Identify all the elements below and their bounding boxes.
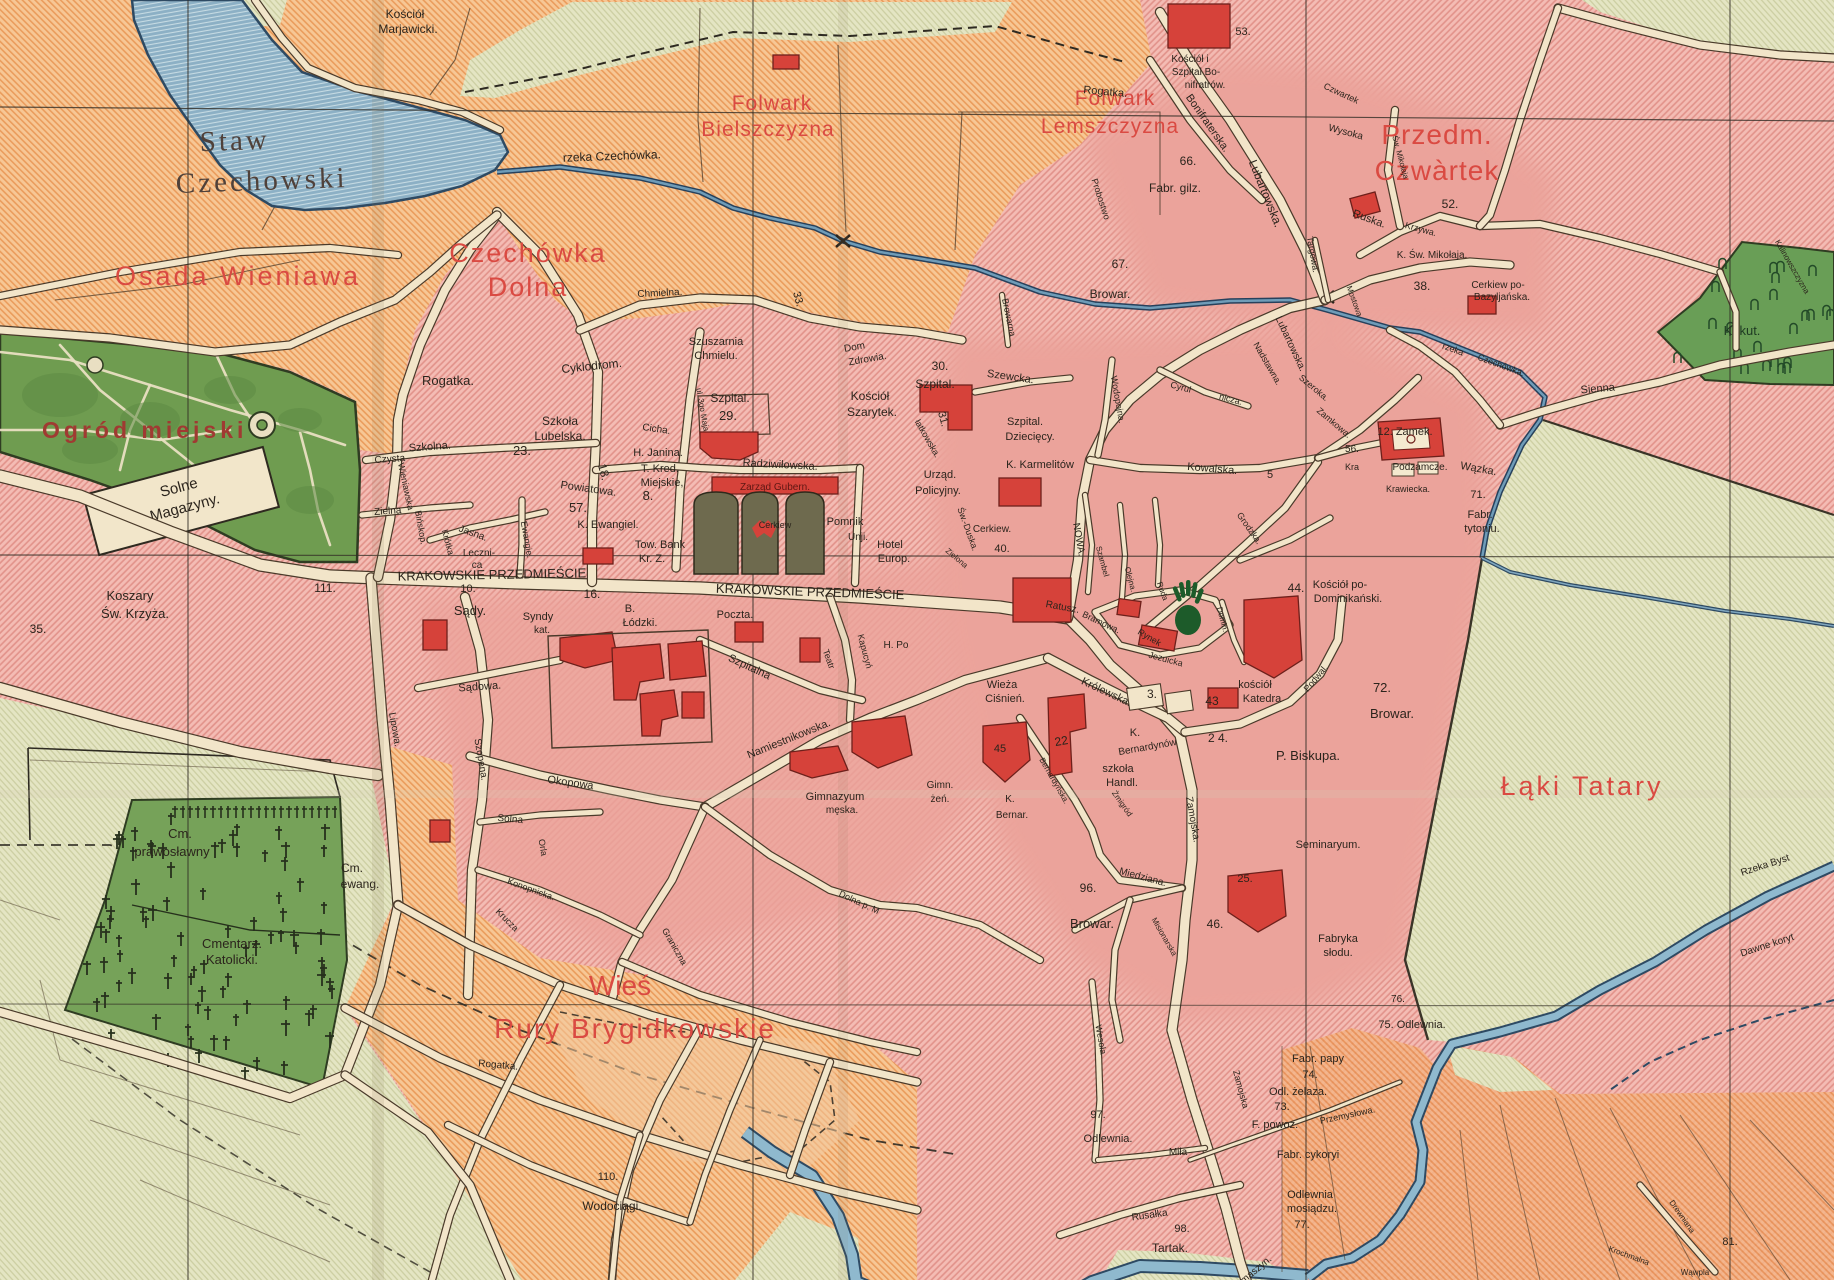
svg-text:Szpital.: Szpital. <box>1007 416 1043 428</box>
svg-text:12. Zamek.: 12. Zamek. <box>1377 426 1432 438</box>
svg-text:mosiądzu.: mosiądzu. <box>1287 1203 1337 1215</box>
svg-text:Szkoła: Szkoła <box>542 414 578 428</box>
svg-text:96.: 96. <box>1080 881 1097 895</box>
svg-text:K. Karmelitów: K. Karmelitów <box>1006 459 1074 471</box>
svg-text:77.: 77. <box>1294 1219 1309 1231</box>
svg-text:Chmielu.: Chmielu. <box>694 350 737 362</box>
svg-text:Rogatka.: Rogatka. <box>422 373 474 388</box>
svg-text:żeń.: żeń. <box>931 794 950 805</box>
svg-text:Cmentarz.: Cmentarz. <box>202 936 262 951</box>
svg-text:Kr. Z.: Kr. Z. <box>639 553 665 565</box>
svg-text:Dolna: Dolna <box>488 272 569 302</box>
svg-text:72.: 72. <box>1373 680 1391 695</box>
svg-text:Wodociągi.: Wodociągi. <box>582 1199 641 1213</box>
svg-text:Łódzki.: Łódzki. <box>623 617 658 629</box>
svg-text:38.: 38. <box>1414 279 1431 293</box>
svg-text:74.: 74. <box>1302 1069 1317 1081</box>
svg-text:kat.: kat. <box>534 625 550 636</box>
svg-text:44.: 44. <box>1288 581 1305 595</box>
svg-text:Szuszarnia: Szuszarnia <box>689 336 744 348</box>
svg-text:Osada Wieniawa: Osada Wieniawa <box>115 261 361 291</box>
svg-text:Tartak.: Tartak. <box>1152 1241 1188 1255</box>
svg-text:25.: 25. <box>1237 873 1252 885</box>
svg-text:Kra: Kra <box>1345 462 1359 472</box>
svg-text:Lemszczyzna: Lemszczyzna <box>1041 115 1179 138</box>
svg-text:Szpital.: Szpital. <box>915 377 954 391</box>
svg-text:29.: 29. <box>719 408 737 423</box>
svg-text:52.: 52. <box>1442 197 1459 211</box>
svg-text:110.: 110. <box>598 1171 619 1183</box>
svg-text:Cerkiew po-: Cerkiew po- <box>1471 280 1524 291</box>
svg-text:Szpital.: Szpital. <box>710 391 749 405</box>
svg-text:szkoła: szkoła <box>1102 763 1134 775</box>
svg-text:Miejskie,: Miejskie, <box>641 477 684 489</box>
svg-text:Św. Krzyża.: Św. Krzyża. <box>101 606 169 621</box>
svg-text:Bazyljańska.: Bazyljańska. <box>1474 292 1530 303</box>
svg-text:słodu.: słodu. <box>1323 947 1352 959</box>
svg-text:Staw: Staw <box>199 124 270 158</box>
svg-text:Fabr.: Fabr. <box>1467 509 1492 521</box>
svg-text:Tow. Bank: Tow. Bank <box>635 539 686 551</box>
svg-text:Solna: Solna <box>497 813 524 826</box>
svg-text:Dziecięcy.: Dziecięcy. <box>1005 431 1054 443</box>
svg-text:57.: 57. <box>569 500 587 515</box>
svg-text:Podzamcze.: Podzamcze. <box>1392 462 1447 473</box>
svg-text:Fabr. cykoryi: Fabr. cykoryi <box>1277 1149 1339 1161</box>
svg-text:30.: 30. <box>932 359 949 373</box>
svg-text:P. Biskupa.: P. Biskupa. <box>1276 748 1340 763</box>
svg-text:40.: 40. <box>994 543 1009 555</box>
svg-text:73.: 73. <box>1274 1101 1289 1113</box>
svg-text:16.: 16. <box>584 587 601 601</box>
svg-text:Bielszczyzna: Bielszczyzna <box>701 118 834 141</box>
svg-text:Ogród miejski: Ogród miejski <box>42 417 247 443</box>
svg-text:Gimnazyum: Gimnazyum <box>806 791 865 803</box>
svg-text:Browar.: Browar. <box>1370 706 1414 721</box>
svg-text:98.: 98. <box>1174 1223 1189 1235</box>
svg-text:2 4.: 2 4. <box>1208 731 1228 745</box>
svg-text:Katedra: Katedra <box>1243 693 1282 705</box>
svg-text:111.: 111. <box>314 581 336 595</box>
svg-text:Syndy: Syndy <box>523 611 554 623</box>
svg-text:męska.: męska. <box>826 805 858 816</box>
svg-text:23.: 23. <box>513 443 531 458</box>
svg-text:Marjawicki.: Marjawicki. <box>378 22 437 36</box>
svg-text:Szpital Bo-: Szpital Bo- <box>1172 67 1220 78</box>
svg-text:22: 22 <box>1054 733 1070 749</box>
svg-text:Leczni-: Leczni- <box>463 548 495 559</box>
svg-text:H. Po: H. Po <box>883 640 908 651</box>
svg-text:prawosławny: prawosławny <box>134 844 210 859</box>
svg-text:Fabr. papy: Fabr. papy <box>1292 1053 1344 1065</box>
svg-text:97.: 97. <box>1090 1109 1105 1121</box>
svg-text:Wieś: Wieś <box>589 970 651 1001</box>
svg-text:Handl.: Handl. <box>1106 777 1138 789</box>
svg-text:Browar.: Browar. <box>1070 916 1114 931</box>
svg-text:Hotel: Hotel <box>877 539 903 551</box>
svg-text:K. Św. Mikołaja.: K. Św. Mikołaja. <box>1397 248 1468 261</box>
svg-text:Dominikański.: Dominikański. <box>1314 593 1382 605</box>
svg-text:67.: 67. <box>1112 257 1129 271</box>
svg-text:Wieża: Wieża <box>987 679 1018 691</box>
svg-text:Rury Brygidkowskie: Rury Brygidkowskie <box>494 1013 776 1044</box>
svg-text:Odlewnia: Odlewnia <box>1287 1189 1334 1201</box>
svg-text:B.: B. <box>625 603 635 615</box>
svg-text:Czwàrtek: Czwàrtek <box>1375 155 1500 186</box>
svg-text:Unji.: Unji. <box>848 532 868 543</box>
svg-text:tytoniu.: tytoniu. <box>1464 523 1499 535</box>
svg-text:Łąki Tatary: Łąki Tatary <box>1500 771 1663 801</box>
svg-text:5: 5 <box>1267 469 1273 481</box>
svg-text:53.: 53. <box>1235 26 1250 38</box>
svg-text:Odl. żelaza.: Odl. żelaza. <box>1269 1086 1327 1098</box>
svg-text:8.: 8. <box>643 488 654 503</box>
svg-text:71.: 71. <box>1470 489 1485 501</box>
svg-text:75. Odlewnia.: 75. Odlewnia. <box>1378 1019 1445 1031</box>
svg-text:nifratrów.: nifratrów. <box>1185 80 1226 91</box>
svg-text:Cerkiew.: Cerkiew. <box>973 524 1011 535</box>
svg-text:Zielna: Zielna <box>374 505 402 518</box>
svg-text:35.: 35. <box>30 622 47 636</box>
svg-text:Bernar.: Bernar. <box>996 810 1028 821</box>
svg-text:Odlewnia.: Odlewnia. <box>1084 1133 1133 1145</box>
svg-text:66.: 66. <box>1180 154 1197 168</box>
svg-text:10.: 10. <box>460 583 475 595</box>
svg-text:Miła: Miła <box>1169 1147 1188 1158</box>
svg-text:Seminaryum.: Seminaryum. <box>1296 839 1361 851</box>
svg-text:81.: 81. <box>1722 1236 1737 1248</box>
svg-text:K. Ewangiel.: K. Ewangiel. <box>577 519 638 531</box>
svg-text:46.: 46. <box>1207 917 1224 931</box>
svg-text:Poczta.: Poczta. <box>717 609 754 621</box>
svg-text:Czechówka: Czechówka <box>449 238 607 268</box>
svg-text:Pomnik: Pomnik <box>827 516 864 528</box>
svg-text:Kościół: Kościół <box>386 7 425 21</box>
svg-text:Gimn.: Gimn. <box>927 780 954 791</box>
svg-text:76.: 76. <box>1391 994 1405 1005</box>
svg-text:K.: K. <box>1005 794 1014 805</box>
svg-text:Ciśnień.: Ciśnień. <box>985 693 1025 705</box>
svg-text:Cerkiew: Cerkiew <box>759 520 792 530</box>
svg-text:Kościół: Kościół <box>851 389 890 403</box>
svg-text:Fabryka: Fabryka <box>1318 933 1359 945</box>
svg-text:Czechowski: Czechowski <box>175 162 348 200</box>
svg-text:Urząd.: Urząd. <box>924 469 956 481</box>
svg-text:45: 45 <box>994 743 1006 755</box>
svg-text:F. powoz.: F. powoz. <box>1252 1119 1298 1131</box>
svg-text:kościół: kościół <box>1238 679 1272 691</box>
svg-text:Katolicki.: Katolicki. <box>206 952 258 967</box>
svg-text:Fabr. gilz.: Fabr. gilz. <box>1149 181 1201 195</box>
svg-text:Sądy.: Sądy. <box>454 603 486 618</box>
svg-text:Koszary: Koszary <box>107 588 154 603</box>
svg-text:Krawiecka.: Krawiecka. <box>1386 484 1430 494</box>
svg-text:Kościół i: Kościół i <box>1171 54 1208 65</box>
svg-text:3.: 3. <box>1147 687 1157 701</box>
svg-text:T. Kred.: T. Kred. <box>641 463 679 475</box>
svg-text:Zarząd Gubern.: Zarząd Gubern. <box>740 482 810 493</box>
svg-text:Chmielna.: Chmielna. <box>637 287 683 300</box>
svg-text:Lubelska.: Lubelska. <box>534 429 585 443</box>
svg-text:43: 43 <box>1205 694 1219 708</box>
svg-text:Szarytek.: Szarytek. <box>847 405 897 419</box>
svg-text:Folwark: Folwark <box>732 92 813 115</box>
svg-text:Europ.: Europ. <box>878 553 910 565</box>
svg-text:Policyjny.: Policyjny. <box>915 485 961 497</box>
svg-text:H. Janina.: H. Janina. <box>633 447 683 459</box>
svg-text:Wąwpla: Wąwpla <box>1681 1268 1710 1277</box>
svg-text:Kościół po-: Kościół po- <box>1313 579 1368 591</box>
svg-text:Browar.: Browar. <box>1090 287 1131 301</box>
svg-text:K.: K. <box>1130 727 1140 739</box>
svg-text:Cm.: Cm. <box>341 861 363 875</box>
svg-text:56.: 56. <box>1345 444 1359 455</box>
svg-text:Kirkut.: Kirkut. <box>1724 323 1761 338</box>
